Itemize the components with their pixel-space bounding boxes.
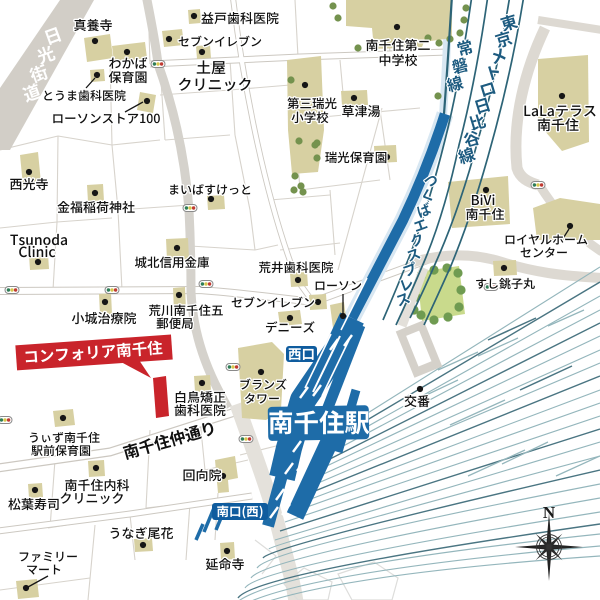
svg-text:N: N — [543, 503, 556, 522]
